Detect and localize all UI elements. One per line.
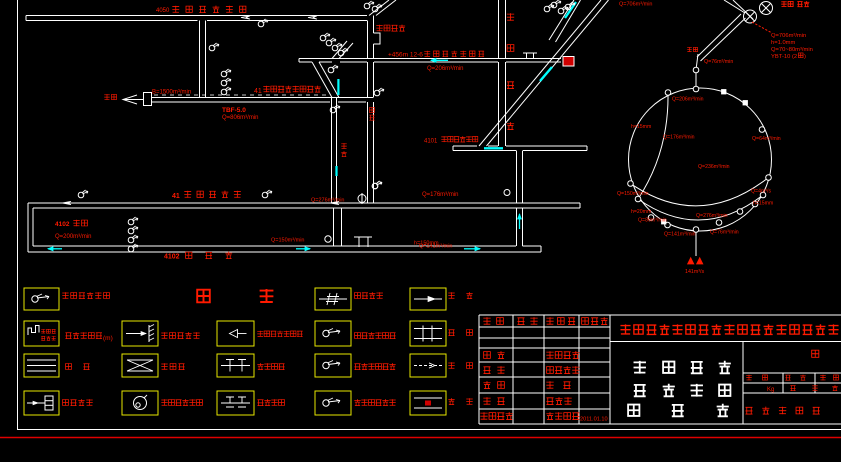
svg-text:Q=86m³/min: Q=86m³/min	[638, 218, 667, 224]
svg-text:41: 41	[254, 88, 262, 95]
svg-text:4050: 4050	[156, 8, 170, 14]
svg-text:Q=236m³/min: Q=236m³/min	[698, 164, 730, 170]
svg-text:): )	[804, 54, 806, 60]
svg-text:2011.01.10: 2011.01.10	[580, 417, 608, 423]
svg-text:Q=176m³/min: Q=176m³/min	[663, 135, 695, 141]
svg-text:Q=706m³/min: Q=706m³/min	[619, 2, 652, 8]
svg-text:h=1.0mm: h=1.0mm	[771, 40, 795, 46]
svg-text:Q=200m³/min: Q=200m³/min	[55, 234, 92, 240]
svg-text:Q=70~80m³/min: Q=70~80m³/min	[771, 47, 813, 53]
svg-text:Q=706m³/min: Q=706m³/min	[771, 33, 806, 39]
svg-text:Q=4m³/s: Q=4m³/s	[751, 189, 771, 195]
svg-text:Kg: Kg	[767, 387, 774, 393]
svg-text:(m): (m)	[103, 335, 113, 342]
svg-text:Q=276m³/min: Q=276m³/min	[696, 213, 728, 219]
svg-text:Q=276m³/min: Q=276m³/min	[311, 198, 344, 204]
svg-text:+456m 12-6: +456m 12-6	[388, 52, 423, 59]
svg-text:Q=76m³/min: Q=76m³/min	[710, 230, 739, 236]
svg-text:h=15mm: h=15mm	[631, 124, 651, 130]
svg-text:Q=76m³/min: Q=76m³/min	[704, 59, 733, 65]
svg-text:4101: 4101	[424, 139, 438, 145]
svg-text:41: 41	[172, 193, 180, 200]
svg-text:Q=150m³/min: Q=150m³/min	[271, 238, 304, 244]
svg-text:h=15mm: h=15mm	[753, 201, 773, 207]
svg-text:Q=206m³/min: Q=206m³/min	[672, 97, 704, 103]
svg-text:Q=206m³/min: Q=206m³/min	[427, 66, 464, 72]
svg-text:TBF-5.0: TBF-5.0	[222, 107, 246, 114]
svg-text:B=1500m³/min: B=1500m³/min	[152, 90, 191, 96]
svg-text:Q=141m³/min: Q=141m³/min	[419, 244, 452, 250]
svg-text:Q=150m³/min: Q=150m³/min	[617, 191, 649, 197]
svg-text:h=20mm: h=20mm	[631, 209, 651, 215]
svg-text:4102: 4102	[55, 221, 70, 228]
svg-text:Q=64m³/min: Q=64m³/min	[752, 136, 781, 142]
svg-text:141m³/s: 141m³/s	[685, 269, 704, 275]
svg-text:4102: 4102	[164, 254, 180, 261]
svg-text:YBT-10 (2: YBT-10 (2	[771, 54, 797, 60]
svg-text:Q=176m³/min: Q=176m³/min	[422, 192, 459, 198]
svg-text:Q=806m³/min: Q=806m³/min	[222, 115, 259, 121]
svg-text:Q=141m³/min: Q=141m³/min	[664, 232, 696, 238]
